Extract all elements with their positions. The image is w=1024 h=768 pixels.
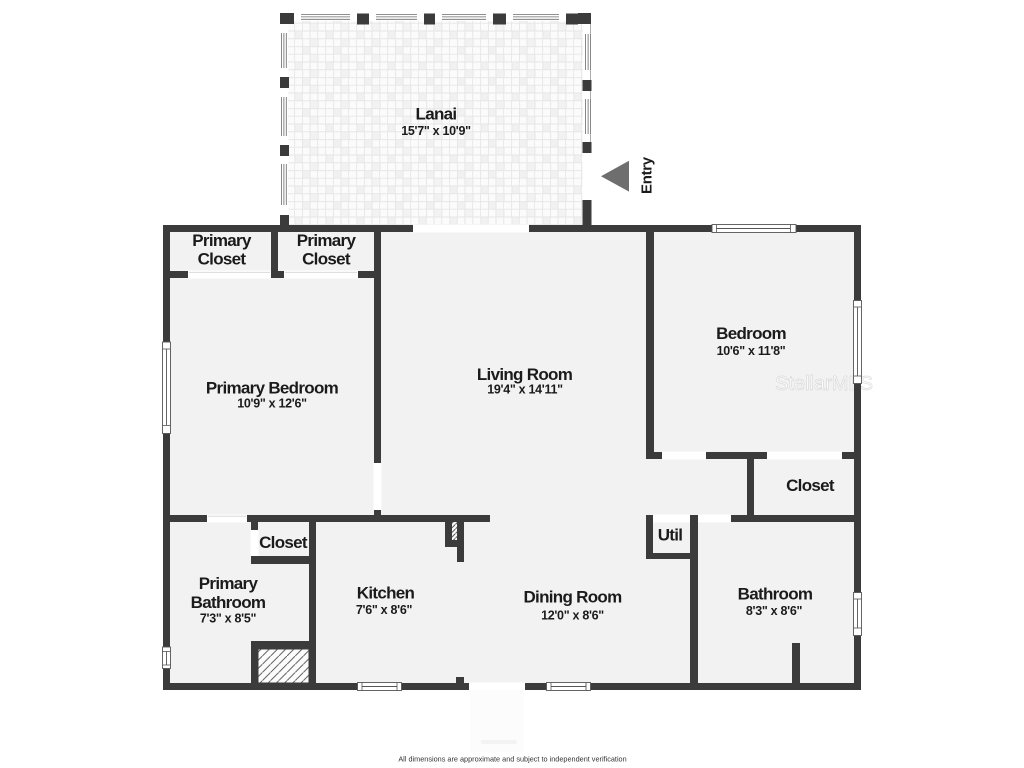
- svg-text:Util: Util: [658, 526, 683, 545]
- svg-text:Entry: Entry: [639, 156, 656, 194]
- svg-text:15'7" x 10'9": 15'7" x 10'9": [401, 124, 471, 138]
- svg-text:10'6" x 11'8": 10'6" x 11'8": [717, 344, 786, 358]
- svg-text:19'4" x 14'11": 19'4" x 14'11": [487, 383, 563, 397]
- svg-text:Bathroom: Bathroom: [191, 593, 266, 612]
- svg-text:Closet: Closet: [259, 533, 308, 552]
- svg-text:Closet: Closet: [198, 250, 247, 269]
- svg-text:Primary: Primary: [192, 231, 252, 250]
- svg-text:Closet: Closet: [786, 476, 835, 495]
- svg-text:7'6" x 8'6": 7'6" x 8'6": [356, 603, 413, 617]
- svg-text:Primary: Primary: [199, 574, 259, 593]
- svg-text:Primary Bedroom: Primary Bedroom: [206, 379, 339, 398]
- svg-text:Closet: Closet: [302, 250, 351, 269]
- svg-text:Kitchen: Kitchen: [357, 584, 415, 603]
- svg-text:Living Room: Living Room: [477, 365, 573, 384]
- svg-text:12'0" x 8'6": 12'0" x 8'6": [541, 609, 604, 623]
- svg-text:8'3" x 8'6": 8'3" x 8'6": [746, 604, 803, 618]
- svg-text:Bathroom: Bathroom: [738, 585, 813, 604]
- svg-text:Primary: Primary: [297, 231, 357, 250]
- svg-text:Dining Room: Dining Room: [523, 588, 622, 607]
- svg-text:All dimensions are approximate: All dimensions are approximate and subje…: [398, 755, 626, 764]
- svg-text:10'9" x 12'6": 10'9" x 12'6": [237, 397, 307, 411]
- svg-text:7'3" x 8'5": 7'3" x 8'5": [200, 612, 257, 626]
- svg-text:Lanai: Lanai: [416, 105, 457, 124]
- svg-text:Bedroom: Bedroom: [716, 324, 786, 343]
